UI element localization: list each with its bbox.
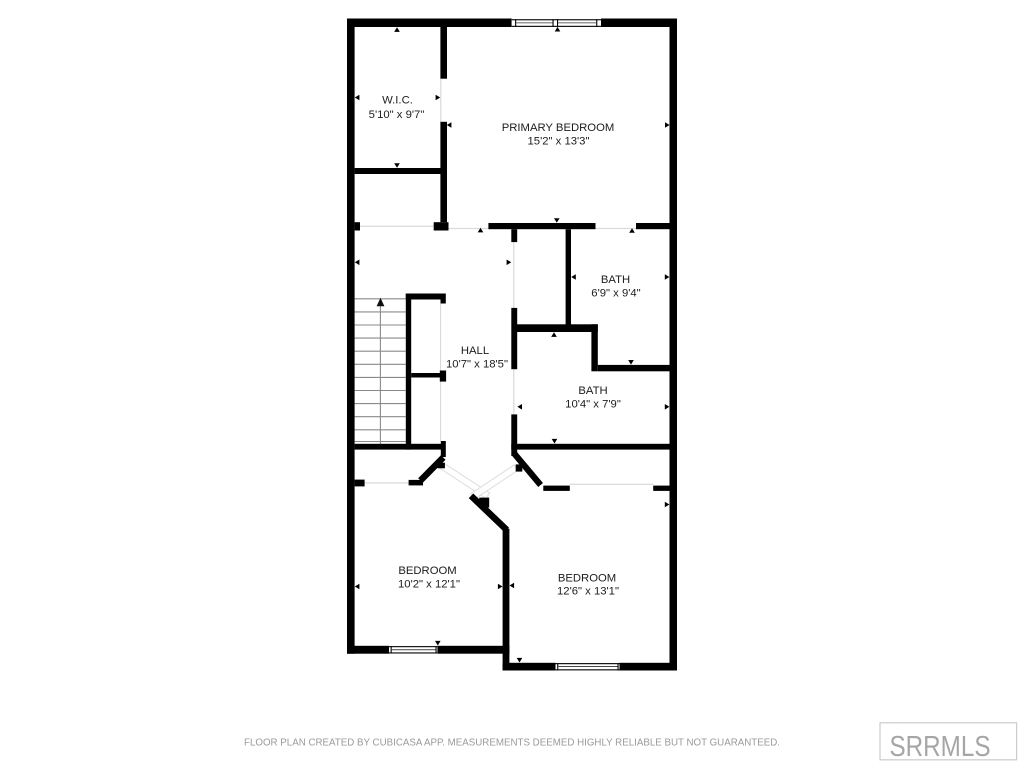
svg-text:BATH: BATH	[601, 274, 630, 286]
svg-text:SRRMLS: SRRMLS	[890, 731, 991, 763]
svg-text:6'9" x 9'4": 6'9" x 9'4"	[591, 287, 640, 299]
svg-text:10'7" x 18'5": 10'7" x 18'5"	[446, 358, 508, 370]
svg-text:12'6" x 13'1": 12'6" x 13'1"	[557, 585, 619, 597]
svg-text:10'4" x 7'9": 10'4" x 7'9"	[565, 398, 621, 410]
svg-text:BEDROOM: BEDROOM	[558, 572, 616, 584]
svg-text:HALL: HALL	[461, 345, 489, 357]
svg-text:BATH: BATH	[578, 385, 607, 397]
svg-text:10'2" x 12'1": 10'2" x 12'1"	[398, 578, 460, 590]
svg-text:BEDROOM: BEDROOM	[398, 565, 456, 577]
svg-text:PRIMARY BEDROOM: PRIMARY BEDROOM	[502, 122, 615, 134]
svg-text:FLOOR PLAN CREATED BY CUBICASA: FLOOR PLAN CREATED BY CUBICASA APP. MEAS…	[244, 738, 780, 749]
svg-text:5'10" x 9'7": 5'10" x 9'7"	[369, 109, 425, 121]
svg-text:15'2" x 13'3": 15'2" x 13'3"	[528, 135, 590, 147]
svg-text:W.I.C.: W.I.C.	[382, 94, 413, 106]
